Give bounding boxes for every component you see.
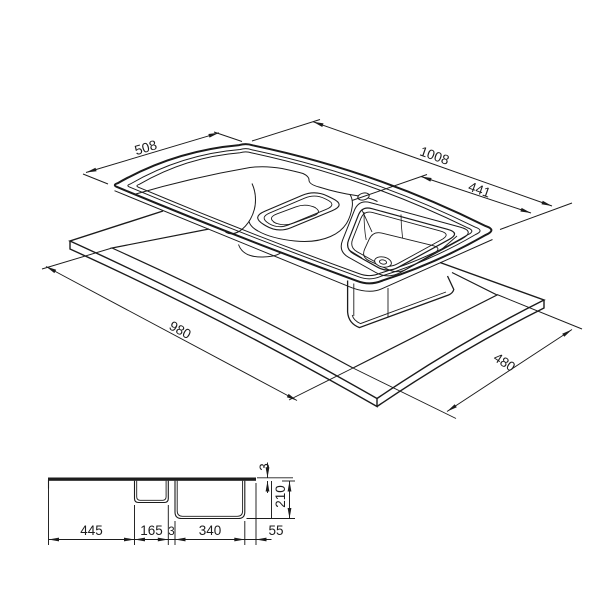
svg-text:3: 3 <box>168 526 174 538</box>
svg-text:55: 55 <box>268 523 283 538</box>
svg-text:441: 441 <box>466 179 492 201</box>
svg-text:480: 480 <box>491 350 518 375</box>
svg-text:3: 3 <box>257 463 272 471</box>
svg-text:980: 980 <box>167 318 194 342</box>
svg-text:165: 165 <box>140 523 163 538</box>
svg-text:508: 508 <box>133 137 159 158</box>
svg-text:445: 445 <box>80 523 103 538</box>
svg-text:340: 340 <box>199 523 222 538</box>
svg-text:210: 210 <box>273 485 288 508</box>
